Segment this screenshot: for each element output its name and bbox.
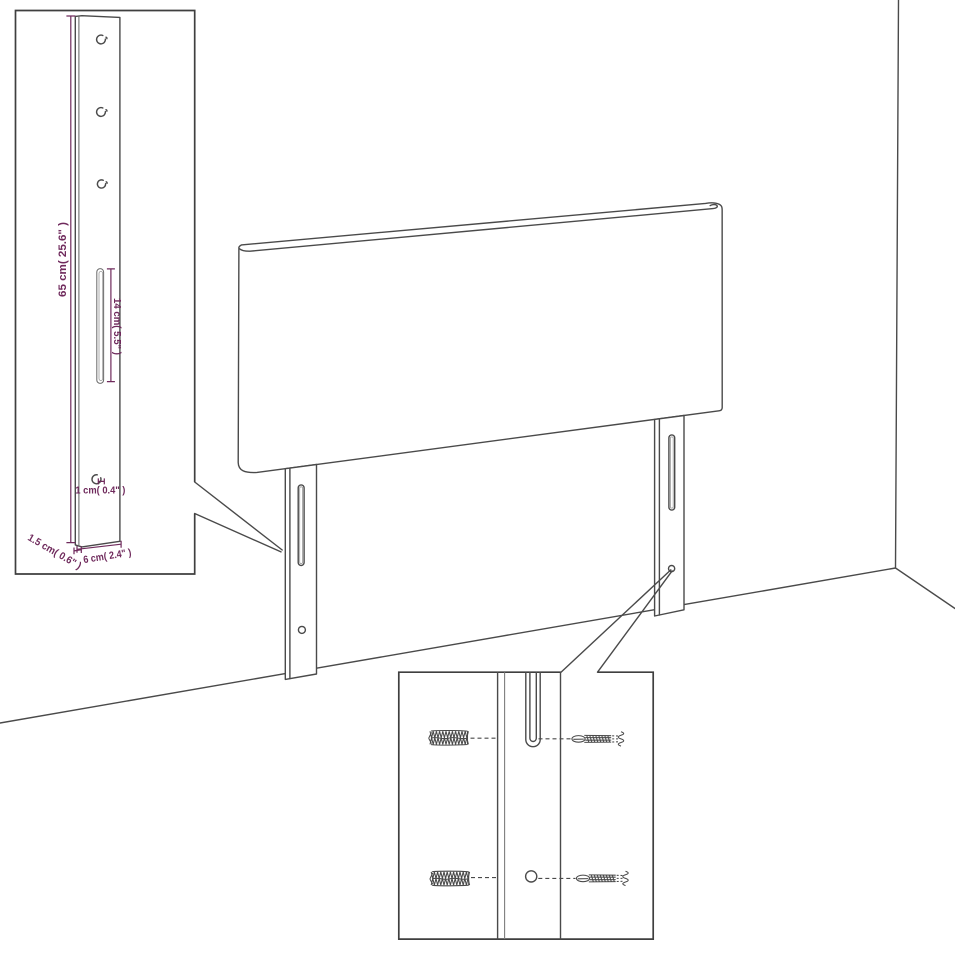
- svg-text:6 cm( 2.4" ): 6 cm( 2.4" ): [83, 548, 133, 566]
- svg-text:14 cm( 5.5" ): 14 cm( 5.5" ): [111, 298, 122, 355]
- svg-text:1 cm( 0.4" ): 1 cm( 0.4" ): [75, 486, 125, 497]
- svg-text:65 cm( 25.6" ): 65 cm( 25.6" ): [57, 222, 69, 297]
